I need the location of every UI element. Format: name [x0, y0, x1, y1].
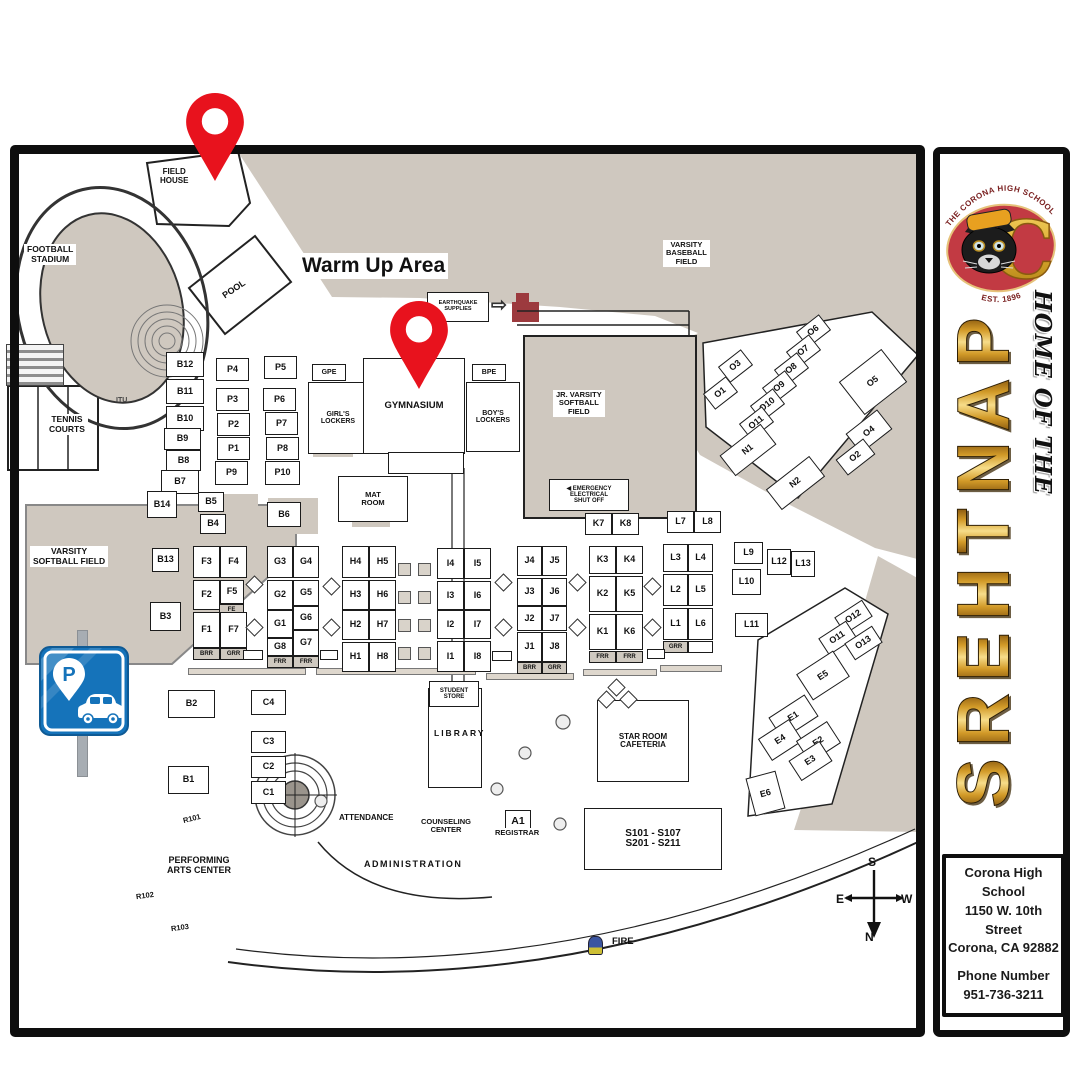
small-structure: [418, 591, 431, 604]
map-room-c2: C2: [251, 756, 286, 778]
map-room-b11: B11: [166, 379, 204, 404]
svg-text:R: R: [944, 694, 1024, 746]
bleachers: [6, 344, 64, 386]
map-label-varsity: VARSITY BASEBALL FIELD: [663, 240, 710, 267]
svg-text:P: P: [62, 664, 75, 686]
map-room-l11: L11: [735, 613, 768, 637]
diamond-planter: [322, 577, 340, 595]
parking-sign-post: [77, 735, 88, 777]
compass-icon: [830, 848, 920, 944]
map-room-k4: K4: [616, 546, 643, 574]
map-room-b4: B4: [200, 514, 226, 534]
map-room-b6: B6: [267, 502, 301, 527]
map-room-emergency: ◀ EMERGENCY ELECTRICAL SHUT OFF: [549, 479, 629, 511]
fire-hydrant-icon: [588, 936, 603, 955]
map-room-s101-s107: S101 - S107 S201 - S211: [584, 808, 722, 870]
small-structure: [418, 647, 431, 660]
map-building: [492, 651, 512, 661]
map-room-g4: G4: [293, 546, 319, 578]
map-room-frr: FRR: [589, 651, 616, 663]
map-room-l4: L4: [688, 544, 713, 572]
map-room-h6: H6: [369, 580, 396, 610]
map-label-: ⇨: [491, 295, 507, 316]
map-room-f2: F2: [193, 580, 220, 610]
map-room-brr: BRR: [517, 662, 542, 674]
city-state-zip: Corona, CA 92882: [948, 939, 1059, 958]
diamond-planter: [643, 618, 661, 636]
map-room-n2: N2: [766, 456, 825, 510]
map-room-h8: H8: [369, 642, 396, 672]
map-room-c1: C1: [251, 781, 286, 804]
map-room-l9: L9: [734, 542, 763, 564]
map-room-b2: B2: [168, 690, 215, 718]
sidebar: THE CORONA HIGH SCHOOL C EST. 1896: [933, 147, 1070, 1037]
map-room-p7: P7: [265, 412, 298, 435]
map-building: [688, 641, 713, 653]
svg-text:H: H: [944, 568, 1024, 620]
map-room-frr: FRR: [616, 651, 643, 663]
small-structure: [398, 591, 411, 604]
small-structure: [418, 619, 431, 632]
diamond-planter: [568, 573, 586, 591]
map-room-e6: E6: [745, 771, 785, 817]
map-room-g2: G2: [267, 580, 293, 610]
map-label-performing: PERFORMING ARTS CENTER: [167, 855, 231, 875]
map-room-h3: H3: [342, 580, 369, 610]
diamond-planter: [568, 618, 586, 636]
map-room-i7: I7: [464, 610, 491, 639]
svg-text:A: A: [944, 379, 1024, 431]
map-label-varsity: VARSITY SOFTBALL FIELD: [30, 546, 108, 567]
map-room-b3: B3: [150, 602, 181, 631]
map-room-o5: O5: [839, 349, 907, 415]
map-room-gpe: GPE: [312, 364, 346, 381]
map-room-i2: I2: [437, 610, 464, 639]
map-room-j5: J5: [542, 546, 567, 576]
map-room-l6: L6: [688, 608, 713, 640]
map-room-j6: J6: [542, 578, 567, 606]
map-room-g8: G8: [267, 638, 293, 656]
map-room-brr: BRR: [193, 648, 220, 660]
map-room-j3: J3: [517, 578, 542, 606]
svg-text:S: S: [944, 759, 1024, 807]
map-room-f3: F3: [193, 546, 220, 578]
svg-text:E: E: [944, 633, 1024, 681]
map-room-mat: MAT ROOM: [338, 476, 408, 522]
map-room-k2: K2: [589, 576, 616, 612]
map-room-p10: P10: [265, 461, 300, 485]
diamond-planter: [245, 575, 263, 593]
map-room-b5: B5: [198, 492, 224, 512]
map-room-p3: P3: [216, 388, 249, 411]
panthers-vertical-text: PANTHERS: [940, 310, 1028, 834]
map-room-f7: F7: [220, 612, 247, 648]
street-address: 1150 W. 10th Street: [948, 902, 1059, 940]
diamond-planter: [494, 573, 512, 591]
map-room-star-room: STAR ROOM CAFETERIA: [597, 700, 689, 782]
walkway: [188, 668, 306, 675]
map-room-i5: I5: [464, 548, 491, 579]
map-room-h7: H7: [369, 610, 396, 640]
map-room-j4: J4: [517, 546, 542, 576]
map-room-j7: J7: [542, 606, 567, 631]
map-label-r102: R102: [132, 889, 157, 903]
map-label-r103: R103: [167, 921, 192, 935]
map-room-l13: L13: [791, 551, 815, 577]
map-room-f5: F5: [220, 580, 244, 604]
walkway: [486, 673, 574, 680]
field-house-pin: [182, 90, 248, 189]
map-room-i1: I1: [437, 641, 464, 672]
address-block: Corona High School 1150 W. 10th Street C…: [942, 854, 1065, 1017]
map-room-g6: G6: [293, 606, 319, 630]
map-room-p8: P8: [266, 437, 299, 460]
map-room-frr: FRR: [293, 656, 319, 668]
map-room-j2: J2: [517, 606, 542, 631]
diamond-planter: [494, 618, 512, 636]
small-structure: [398, 647, 411, 660]
map-room-grr: GRR: [663, 641, 688, 653]
map-room-boy-s: BOY'S LOCKERS: [466, 382, 520, 452]
map-room-p6: P6: [263, 388, 296, 411]
map-room-k1: K1: [589, 614, 616, 650]
map-building: [320, 650, 338, 660]
map-room-k3: K3: [589, 546, 616, 574]
map-room-f1: F1: [193, 612, 220, 648]
map-room-l5: L5: [688, 574, 713, 606]
map-room-l1: L1: [663, 608, 688, 640]
map-room-g1: G1: [267, 610, 293, 638]
map-room-k7: K7: [585, 513, 612, 535]
map-building: [647, 649, 665, 659]
map-room-h2: H2: [342, 610, 369, 640]
map-room-girl-s: GIRL'S LOCKERS: [308, 382, 368, 454]
map-label-library: LIBRARY: [434, 729, 485, 739]
map-label-registrar: REGISTRAR: [492, 828, 542, 838]
map-room-b8: B8: [166, 450, 201, 471]
map-room-c3: C3: [251, 731, 286, 753]
map-room-student: STUDENT STORE: [429, 681, 479, 707]
svg-text:N: N: [944, 442, 1024, 494]
map-label-football: FOOTBALL STADIUM: [24, 244, 76, 265]
map-label-pool: POOL: [217, 275, 250, 303]
walkway: [660, 665, 722, 672]
diamond-planter: [643, 577, 661, 595]
map-label-itu: ITU: [116, 397, 127, 405]
small-structure: [398, 563, 411, 576]
map-room-p9: P9: [215, 461, 248, 485]
map-room-l10: L10: [732, 569, 761, 595]
map-building: [388, 452, 464, 474]
map-label-fire: FIRE: [612, 937, 634, 948]
svg-text:T: T: [944, 509, 1024, 553]
map-room-h5: H5: [369, 546, 396, 578]
warm-up-area-pin: [386, 298, 452, 397]
phone-label: Phone Number: [948, 967, 1059, 986]
diamond-planter: [245, 618, 263, 636]
map-room-l7: L7: [667, 511, 694, 533]
school-name: Corona High School: [948, 864, 1059, 902]
map-room-l3: L3: [663, 544, 688, 572]
map-room-b14: B14: [147, 491, 177, 518]
parking-sign: P: [38, 645, 130, 737]
map-room-i4: I4: [437, 548, 464, 579]
map-room-o1: O1: [703, 376, 738, 410]
map-room-f4: F4: [220, 546, 247, 578]
map-room-k6: K6: [616, 614, 643, 650]
map-label-counseling: COUNSELING CENTER: [418, 817, 474, 836]
map-room-b12: B12: [166, 352, 204, 377]
map-room-c4: C4: [251, 690, 286, 715]
map-room-h1: H1: [342, 642, 369, 672]
map-room-grr: GRR: [542, 662, 567, 674]
map-room-p1: P1: [217, 437, 250, 460]
map-building: [243, 650, 263, 660]
map-label-r101: R101: [179, 811, 205, 827]
map-room-j1: J1: [517, 632, 542, 662]
map-room-l12: L12: [767, 549, 791, 575]
map-room-p2: P2: [217, 413, 250, 436]
map-room-frr: FRR: [267, 656, 293, 668]
map-room-i3: I3: [437, 581, 464, 610]
map-room-b13: B13: [152, 548, 179, 572]
map-label-administration: ADMINISTRATION: [364, 859, 462, 869]
map-room-p4: P4: [216, 358, 249, 381]
map-room-h4: H4: [342, 546, 369, 578]
small-structure: [398, 619, 411, 632]
map-label-jr-varsity: JR. VARSITY SOFTBALL FIELD: [553, 390, 605, 417]
map-room-k5: K5: [616, 576, 643, 612]
diamond-planter: [322, 618, 340, 636]
map-room-l8: L8: [694, 511, 721, 533]
map-room-g3: G3: [267, 546, 293, 578]
walkway: [583, 669, 657, 676]
map-room-k8: K8: [612, 513, 639, 535]
map-label-warm-up-area: Warm Up Area: [299, 253, 448, 279]
map-room-bpe: BPE: [472, 364, 506, 381]
map-room-g7: G7: [293, 630, 319, 656]
map-room-b9: B9: [164, 428, 201, 450]
map-room-i6: I6: [464, 581, 491, 610]
map-label-tennis: TENNIS COURTS: [46, 414, 88, 435]
map-room-l2: L2: [663, 574, 688, 606]
panther-mascot-icon: [962, 208, 1016, 273]
small-structure: [418, 563, 431, 576]
map-room-p5: P5: [264, 356, 297, 379]
map-room-g5: G5: [293, 580, 319, 606]
svg-text:P: P: [944, 318, 1024, 366]
phone-number: 951-736-3211: [948, 986, 1059, 1005]
map-room-i8: I8: [464, 641, 491, 672]
map-label-attendance: ATTENDANCE: [336, 813, 397, 824]
map-room-b1: B1: [168, 766, 209, 794]
map-room-j8: J8: [542, 632, 567, 662]
